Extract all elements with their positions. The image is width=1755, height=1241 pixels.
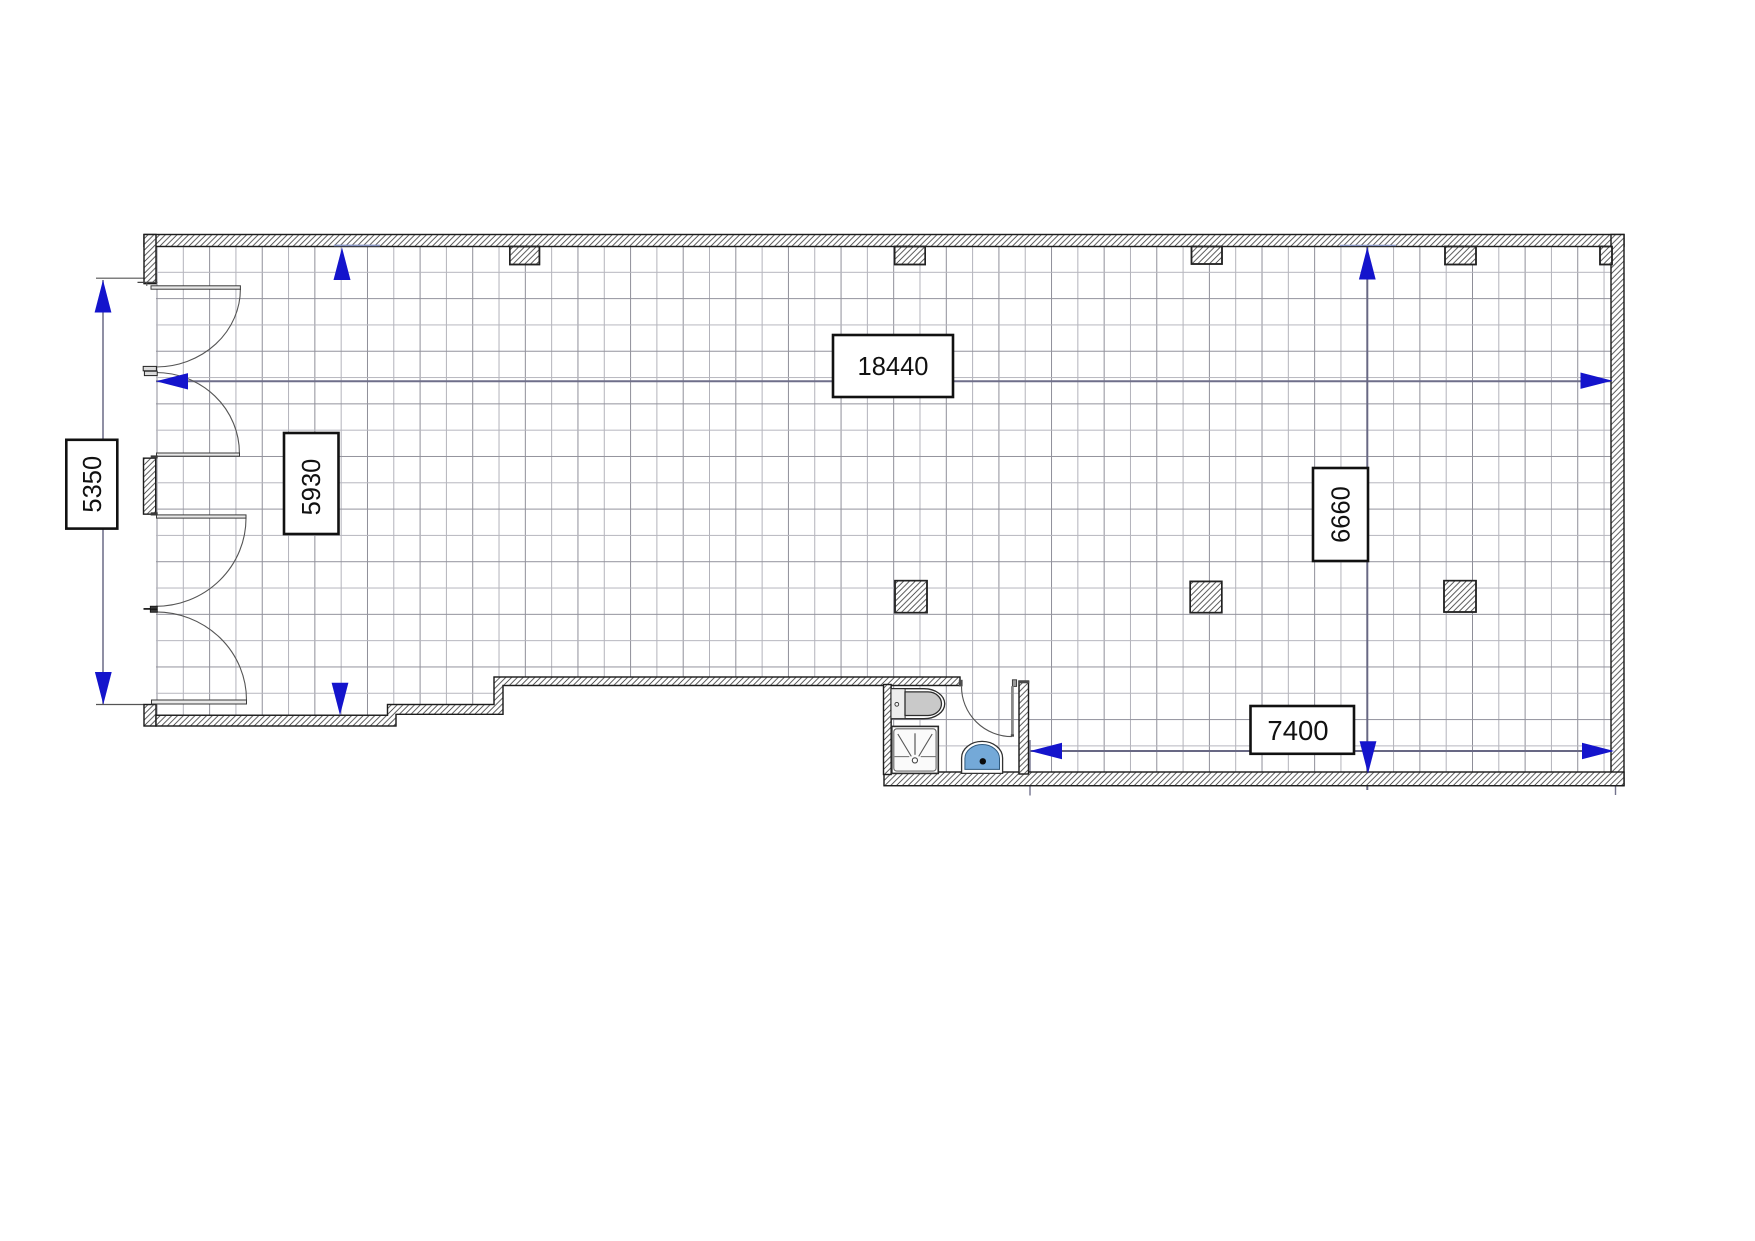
svg-text:18440: 18440 bbox=[858, 353, 929, 381]
svg-text:6660: 6660 bbox=[1328, 486, 1356, 543]
svg-text:5930: 5930 bbox=[298, 459, 326, 516]
svg-text:5350: 5350 bbox=[79, 456, 107, 513]
svg-text:7400: 7400 bbox=[1267, 715, 1328, 746]
